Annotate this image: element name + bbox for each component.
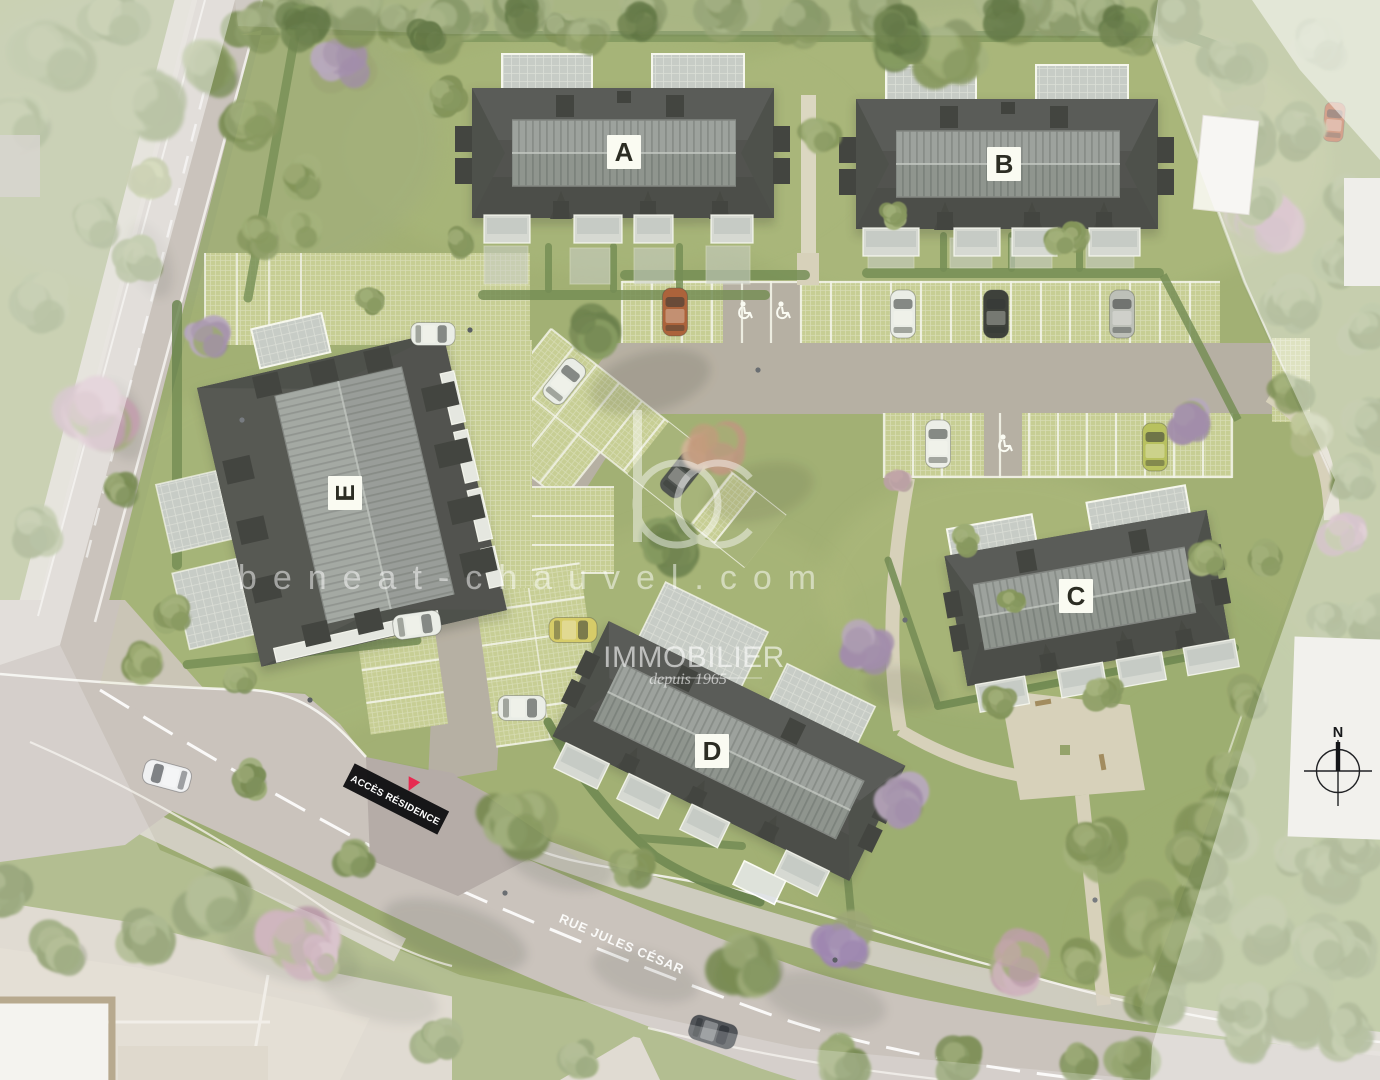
svg-text:IMMOBILIER: IMMOBILIER [603,641,785,674]
svg-text:N: N [1333,725,1343,741]
svg-text:beneat-chauvel.com: beneat-chauvel.com [238,559,832,597]
svg-text:depuis 1965: depuis 1965 [649,671,727,688]
